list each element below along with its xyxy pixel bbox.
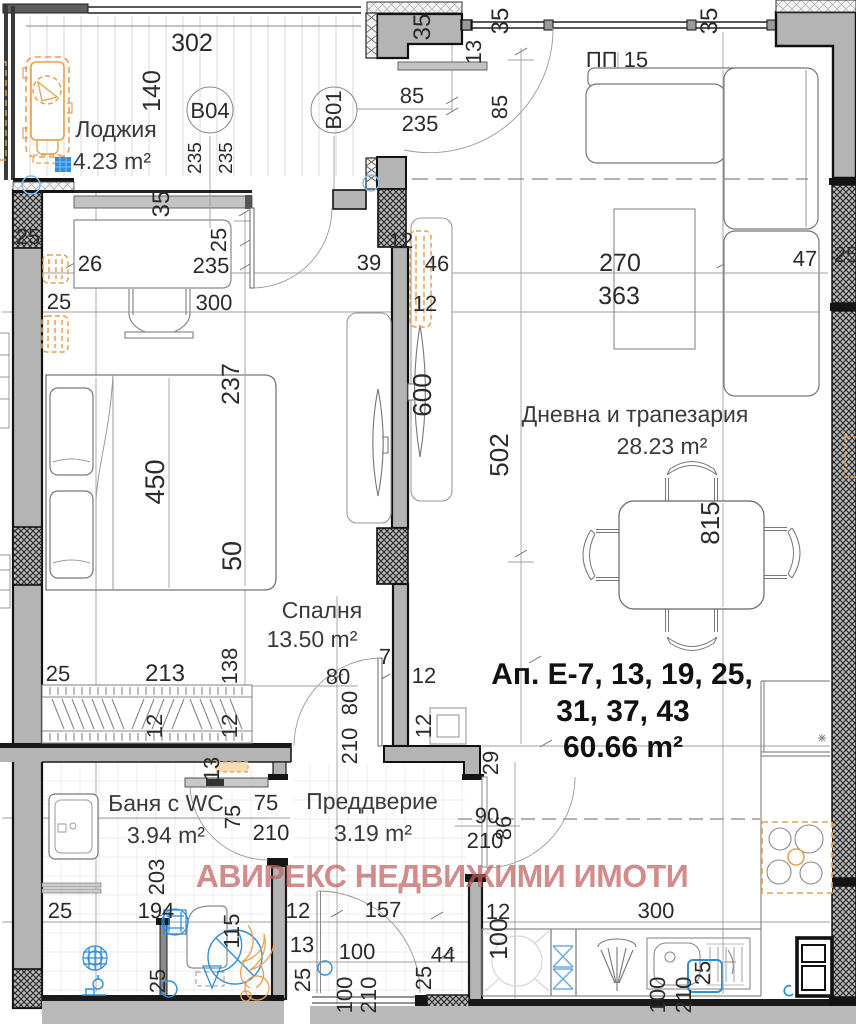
svg-text:Дневна и трапезария: Дневна и трапезария <box>522 401 749 427</box>
svg-text:Спалня: Спалня <box>282 597 362 623</box>
svg-text:В04: В04 <box>190 98 229 123</box>
svg-text:450: 450 <box>140 459 170 504</box>
svg-text:85: 85 <box>400 83 424 108</box>
svg-text:Ап. Е-7, 13, 19, 25,: Ап. Е-7, 13, 19, 25, <box>491 658 753 691</box>
svg-text:80: 80 <box>337 691 362 715</box>
svg-text:35: 35 <box>148 191 175 218</box>
svg-text:502: 502 <box>484 433 514 476</box>
svg-text:25: 25 <box>834 242 856 267</box>
svg-text:7: 7 <box>379 644 391 669</box>
svg-text:12: 12 <box>217 714 242 738</box>
svg-text:25: 25 <box>411 966 436 990</box>
svg-text:100: 100 <box>485 918 513 960</box>
svg-text:31, 37, 43: 31, 37, 43 <box>556 695 689 728</box>
svg-text:13: 13 <box>461 40 486 64</box>
svg-text:300: 300 <box>196 290 233 315</box>
svg-text:210: 210 <box>337 728 362 765</box>
svg-text:47: 47 <box>793 246 817 271</box>
svg-text:12: 12 <box>142 714 167 738</box>
svg-text:237: 237 <box>217 363 245 405</box>
svg-text:3.94 m²: 3.94 m² <box>127 822 205 848</box>
svg-text:270: 270 <box>599 249 641 277</box>
svg-text:35: 35 <box>696 8 723 35</box>
svg-text:213: 213 <box>145 660 185 687</box>
svg-text:600: 600 <box>407 373 437 416</box>
svg-text:39: 39 <box>357 250 381 275</box>
svg-text:12: 12 <box>413 291 437 316</box>
svg-text:ПП 15: ПП 15 <box>586 47 648 72</box>
svg-text:35: 35 <box>409 14 436 41</box>
svg-text:363: 363 <box>598 282 640 310</box>
svg-text:235: 235 <box>216 142 237 174</box>
svg-text:12: 12 <box>389 228 413 253</box>
svg-text:12: 12 <box>286 898 310 923</box>
svg-text:235: 235 <box>185 142 206 174</box>
svg-text:85: 85 <box>487 95 512 119</box>
svg-text:100: 100 <box>332 977 357 1014</box>
svg-text:75: 75 <box>220 805 245 829</box>
svg-text:194: 194 <box>138 898 175 923</box>
svg-text:115: 115 <box>219 913 244 948</box>
svg-text:302: 302 <box>171 29 213 57</box>
svg-text:13: 13 <box>290 932 314 957</box>
svg-text:50: 50 <box>217 541 247 571</box>
svg-text:12: 12 <box>412 663 436 688</box>
svg-text:25: 25 <box>47 289 71 314</box>
svg-text:75: 75 <box>254 790 278 815</box>
svg-text:25: 25 <box>206 228 231 252</box>
svg-text:86: 86 <box>491 816 516 840</box>
svg-text:Преддверие: Преддверие <box>306 788 438 814</box>
svg-text:3.19 m²: 3.19 m² <box>334 820 412 846</box>
svg-text:235: 235 <box>193 253 230 278</box>
svg-text:25: 25 <box>46 661 70 686</box>
svg-text:300: 300 <box>638 898 675 923</box>
svg-text:210: 210 <box>253 820 290 845</box>
svg-text:80: 80 <box>326 664 350 689</box>
svg-text:4.23 m²: 4.23 m² <box>73 148 151 174</box>
svg-text:235: 235 <box>402 111 439 136</box>
svg-text:13: 13 <box>199 757 224 781</box>
svg-text:138: 138 <box>217 648 242 685</box>
svg-text:28.23 m²: 28.23 m² <box>617 433 708 459</box>
svg-text:25: 25 <box>16 224 40 249</box>
svg-text:100: 100 <box>339 939 376 964</box>
svg-text:140: 140 <box>138 70 166 112</box>
svg-text:26: 26 <box>78 251 102 276</box>
svg-text:815: 815 <box>695 501 725 544</box>
svg-text:АВИРЕКС НЕДВИЖИМИ ИМОТИ: АВИРЕКС НЕДВИЖИМИ ИМОТИ <box>196 858 688 894</box>
svg-text:46: 46 <box>425 251 449 276</box>
svg-text:25: 25 <box>290 968 315 992</box>
svg-text:Баня с WC: Баня с WC <box>108 790 224 816</box>
svg-text:210: 210 <box>356 977 381 1014</box>
svg-text:44: 44 <box>431 942 455 967</box>
svg-text:203: 203 <box>144 859 169 896</box>
svg-text:100: 100 <box>645 977 670 1014</box>
svg-text:13.50 m²: 13.50 m² <box>267 626 358 652</box>
svg-text:29: 29 <box>478 751 503 775</box>
svg-text:210: 210 <box>671 977 696 1014</box>
svg-text:35: 35 <box>487 8 514 35</box>
svg-text:157: 157 <box>365 897 402 922</box>
svg-text:12: 12 <box>411 714 436 738</box>
svg-text:25: 25 <box>48 898 72 923</box>
svg-text:25: 25 <box>145 969 170 993</box>
svg-text:Лоджия: Лоджия <box>75 116 157 142</box>
svg-text:В01: В01 <box>321 90 346 129</box>
svg-text:60.66 m²: 60.66 m² <box>563 731 683 764</box>
